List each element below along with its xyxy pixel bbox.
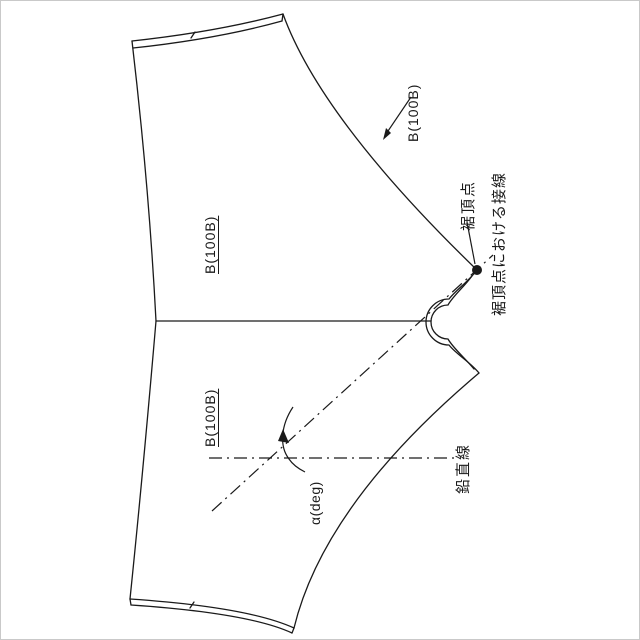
vertical-line-label: 鉛直線 — [455, 443, 472, 494]
panel-ref-label-upper: B(100B) — [202, 216, 218, 274]
lower-panel-hem-end-join-right — [292, 628, 294, 633]
panel-left-edge — [130, 41, 156, 599]
tangent-chain-line — [212, 255, 493, 511]
diagram-canvas: B(100B) B(100B) B(100B) 裾頂点 裾頂点における接線 鉛直… — [0, 0, 640, 640]
angle-arc-arrowhead-icon — [278, 429, 289, 443]
apex-scallop-outer-line — [426, 270, 479, 373]
upper-panel-hem-inner-line — [133, 21, 282, 48]
apex-scallop-inner-line — [431, 276, 474, 369]
panel-ref-arrowhead-icon — [383, 128, 391, 140]
upper-panel-right-edge — [283, 14, 477, 270]
panel-ref-label-top-right: B(100B) — [405, 84, 421, 142]
angle-alpha-label: α(deg) — [307, 481, 323, 525]
hem-apex-label: 裾頂点 — [460, 180, 477, 231]
panel-ref-label-lower: B(100B) — [202, 389, 218, 447]
hem-apex-point-dot — [472, 265, 482, 275]
pattern-diagram-linework — [1, 1, 640, 640]
lower-panel-hem-end-join-left — [130, 599, 131, 605]
tangent-at-hem-apex-label: 裾頂点における接線 — [491, 172, 508, 316]
